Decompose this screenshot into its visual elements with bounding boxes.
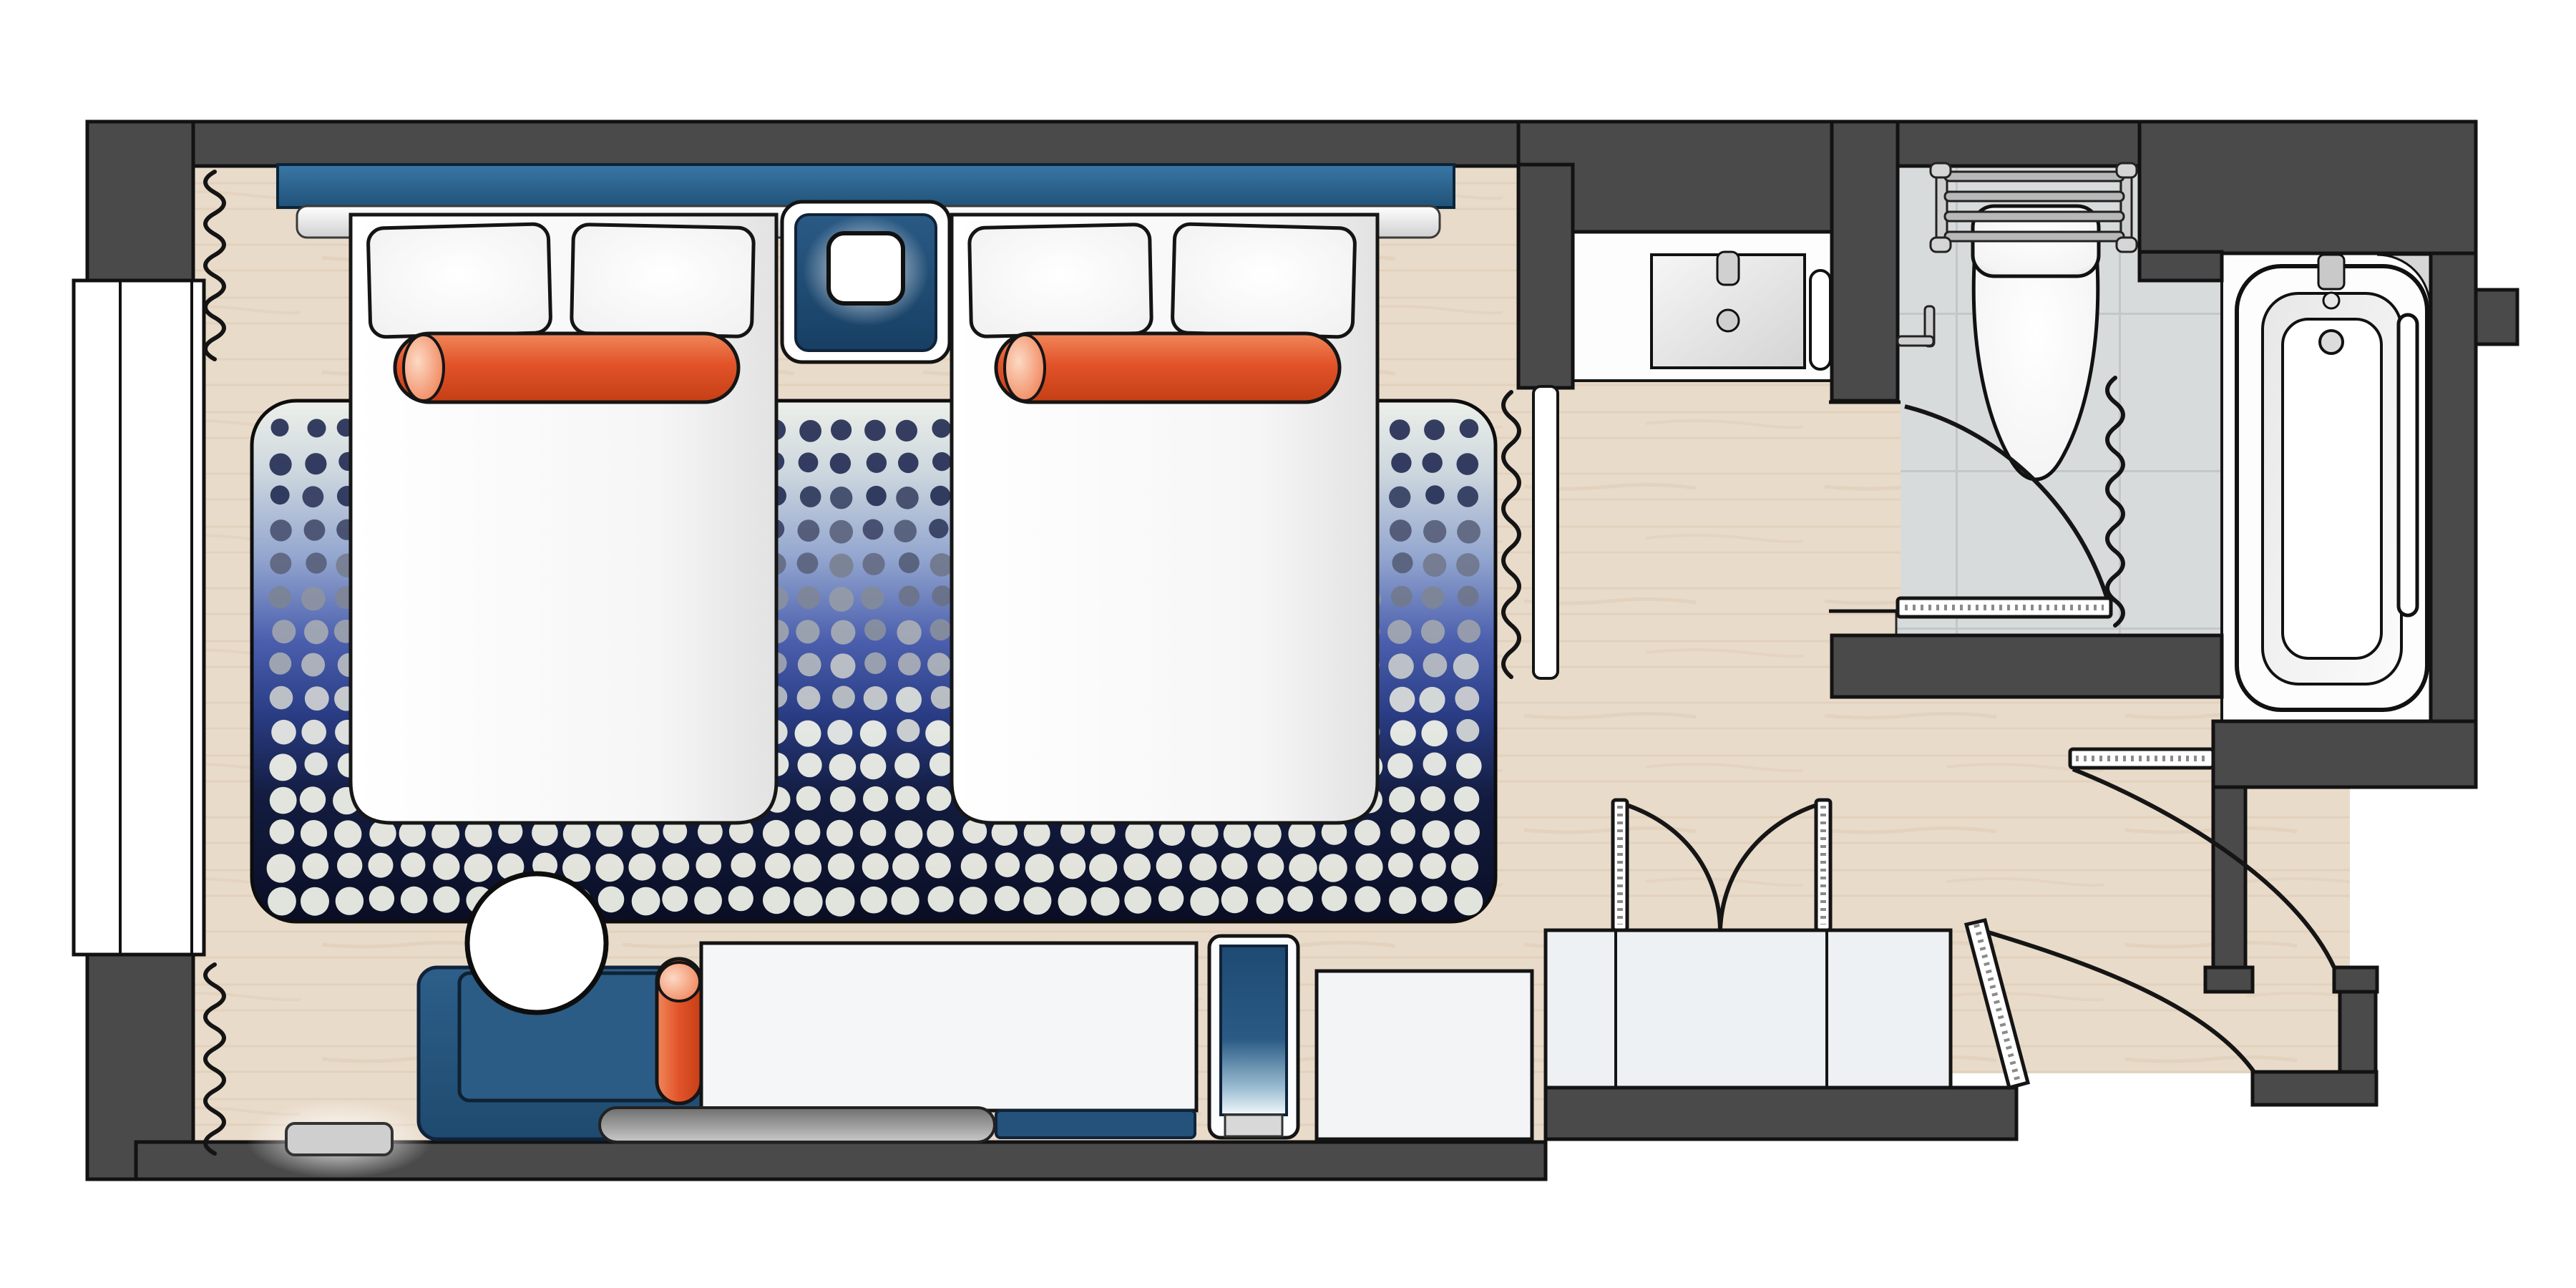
window bbox=[74, 280, 204, 955]
floor-plan bbox=[0, 0, 2576, 1288]
bolster-cap bbox=[1005, 335, 1045, 401]
tub-faucet-icon bbox=[2318, 255, 2344, 289]
wall-bathroom-left bbox=[1832, 122, 1898, 401]
nightstand-tray bbox=[829, 233, 903, 303]
wall-entry-L-vertical bbox=[2340, 992, 2376, 1072]
wall-bottom-closet bbox=[1546, 1088, 2016, 1139]
wall-toilet-alcove-back bbox=[1896, 122, 2140, 166]
grab-bar bbox=[2399, 315, 2417, 615]
pillow bbox=[969, 224, 1151, 336]
bench-base bbox=[996, 1111, 1195, 1138]
bolster-bed-2 bbox=[996, 333, 1340, 402]
bolster-bed-1 bbox=[395, 333, 738, 402]
daybed-bench bbox=[701, 943, 1196, 1111]
floor-plan-canvas bbox=[0, 0, 2576, 1288]
luggage-rack-panel bbox=[1221, 946, 1287, 1115]
wall-alcove-step bbox=[2140, 252, 2222, 280]
wall-entry-L-bottom bbox=[2253, 1072, 2376, 1105]
bolster-cap bbox=[404, 335, 444, 401]
wall-bathroom-bottom bbox=[1832, 635, 2222, 697]
wall-nook-column bbox=[1518, 165, 1573, 388]
pillow bbox=[368, 224, 551, 338]
closet bbox=[1546, 930, 1951, 1088]
window-frame bbox=[74, 280, 204, 955]
tub-drain-icon bbox=[2320, 331, 2343, 353]
dresser bbox=[1317, 971, 1532, 1139]
faucet-icon bbox=[1717, 252, 1739, 285]
sliding-panel bbox=[1533, 386, 1558, 678]
wall-right-nub bbox=[2476, 290, 2517, 344]
bathroom-door-opening bbox=[1828, 402, 1901, 611]
drain-icon bbox=[1717, 310, 1739, 331]
wall-vent bbox=[286, 1123, 392, 1155]
wall-right-tub bbox=[2431, 253, 2476, 721]
pillow bbox=[571, 224, 753, 336]
wall-left-upper bbox=[87, 122, 193, 282]
wall-top-tub-block bbox=[2140, 122, 2476, 253]
towel-bar bbox=[1810, 270, 1830, 369]
tub-spout-icon bbox=[2323, 293, 2339, 308]
round-table bbox=[467, 874, 606, 1013]
luggage-strap bbox=[1225, 1115, 1282, 1136]
bathtub-basin bbox=[2283, 319, 2381, 658]
wall-entry-L-cap bbox=[2334, 967, 2377, 992]
bolster-cap bbox=[658, 962, 700, 1001]
wall-under-tub bbox=[2213, 721, 2476, 787]
wall-entry-strip bbox=[2213, 787, 2245, 967]
bench-tray bbox=[600, 1108, 995, 1142]
pillow bbox=[1172, 224, 1355, 338]
wall-entry-strip-cap bbox=[2205, 967, 2253, 992]
